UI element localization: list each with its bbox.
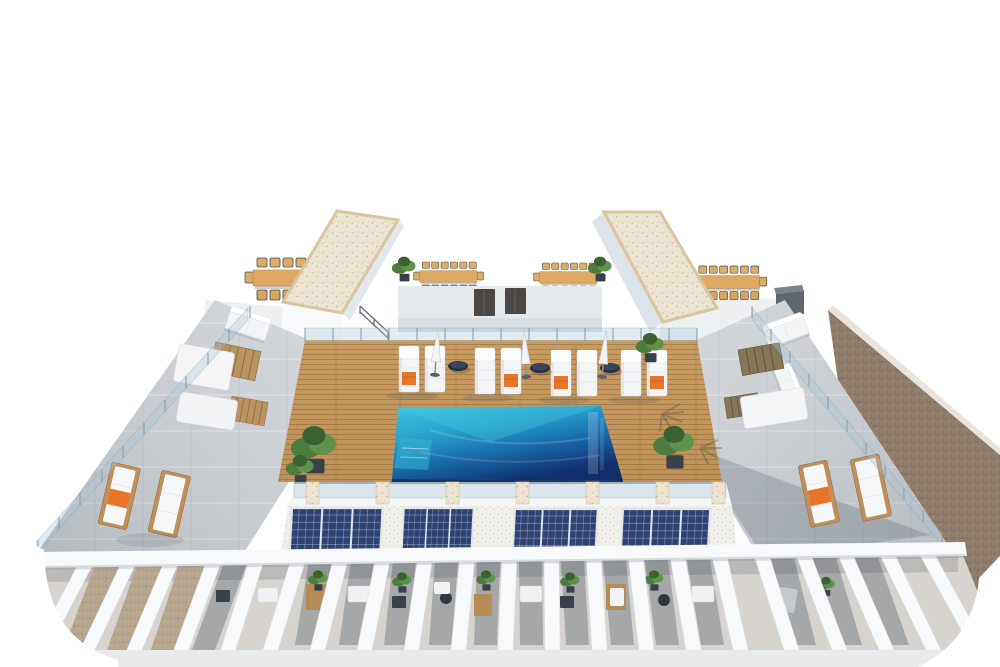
- pergola-terrace: [692, 586, 714, 602]
- swimming-pool: [390, 406, 625, 490]
- pool-reflection: [588, 412, 598, 474]
- sun-lounger-4: [501, 348, 521, 394]
- sun-lounger-7: [621, 350, 641, 396]
- access-door-right: [505, 288, 526, 314]
- solar-bank-1: [290, 508, 383, 556]
- pool-deck: [278, 328, 722, 490]
- render-canvas: Aerial 3D architectural rendering of a r…: [0, 0, 1000, 667]
- pergola-terrace: [348, 586, 370, 602]
- pergola-terrace: [606, 584, 626, 610]
- sun-lounger-5: [551, 350, 571, 396]
- lounger-shadow: [116, 533, 184, 547]
- sun-lounger-6: [577, 350, 597, 396]
- pool-reflection-2: [600, 418, 604, 470]
- bottom-walkway: [52, 650, 955, 667]
- sun-lounger-3: [475, 348, 495, 394]
- centre-wall: [398, 286, 602, 318]
- architectural-render: Aerial 3D architectural rendering of a r…: [0, 0, 1000, 667]
- pergola-terrace: [520, 586, 542, 602]
- pergola-level: [30, 542, 986, 660]
- access-door-left: [474, 289, 495, 316]
- sun-lounger-1: [399, 346, 419, 392]
